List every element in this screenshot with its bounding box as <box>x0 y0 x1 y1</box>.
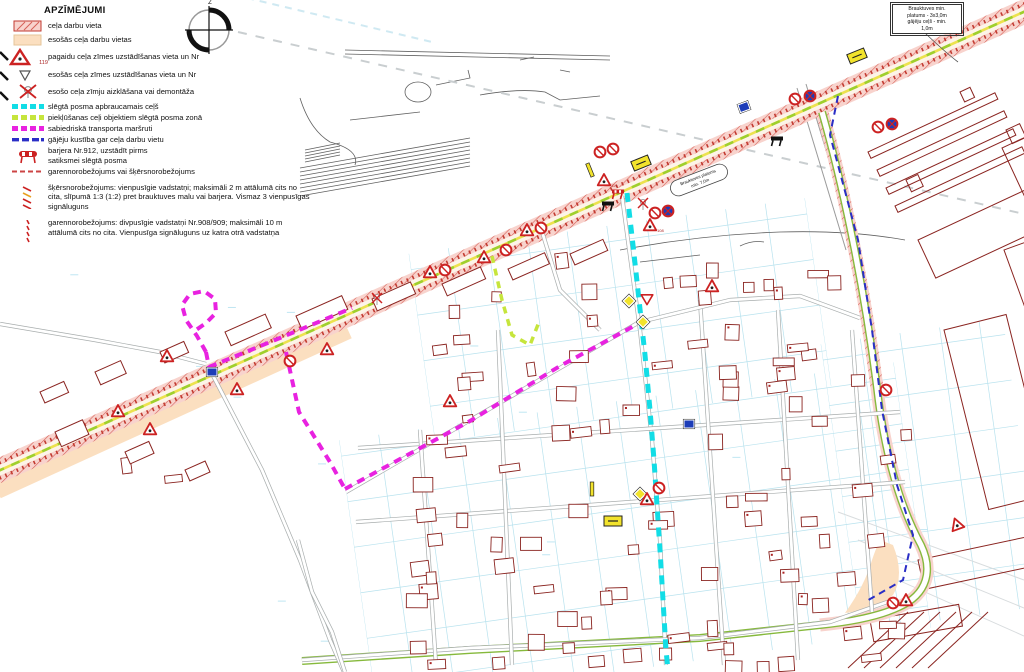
delimiter-dash-icon <box>8 169 48 174</box>
legend-item: esošās ceļa zīmes uzstādīšanas vieta un … <box>8 68 326 82</box>
access-dash-icon <box>8 114 48 121</box>
sign-circ <box>440 265 451 276</box>
sign-circ <box>654 483 665 494</box>
sign-barrierB <box>771 137 783 147</box>
residential-buildings <box>40 239 912 672</box>
sign-circ <box>790 94 801 105</box>
sign-circ <box>650 208 661 219</box>
svg-text:108: 108 <box>657 228 664 233</box>
sign-noStop <box>663 206 674 217</box>
sign-blueRect <box>206 367 218 377</box>
sign-circ <box>888 598 899 609</box>
pedestrian-dash-icon <box>8 137 48 143</box>
legend-note: šķērsnorobežojums: vienpusīgie vadstatņi… <box>8 183 326 211</box>
legend-item: barjera Nr.912, uzstādīt pirms satiksmei… <box>8 146 326 164</box>
sign-noStop <box>805 91 816 102</box>
sign-circ <box>595 147 606 158</box>
sign-tri: 119 <box>598 174 618 188</box>
legend-item: sabiedriskā transporta maršruti <box>8 124 326 133</box>
legend-item: esošās ceļa darbu vietas <box>8 34 326 46</box>
single-posts-icon <box>8 183 48 211</box>
transport-dash-icon <box>8 125 48 132</box>
sign-bar <box>590 482 594 496</box>
existing-works-swatch-icon <box>8 34 48 46</box>
sign-tri <box>706 280 719 291</box>
detour-dash-icon <box>8 103 48 110</box>
sign-circ <box>285 356 296 367</box>
sign-yellowRect <box>604 516 622 526</box>
sign-crossSign <box>638 198 648 210</box>
legend-item: gājēju kustība gar ceļa darbu vietu <box>8 135 326 144</box>
existing-sign-icon <box>8 68 48 82</box>
legend-item: ceļa darbu vieta <box>8 20 326 32</box>
sign-circ <box>881 385 892 396</box>
legend: APZĪMĒJUMI ceļa darbu vieta esošās ceļa … <box>8 3 326 244</box>
legend-note: garennorobežojums: divpusīgie vadstatņi … <box>8 218 326 244</box>
sign-circ <box>873 122 884 133</box>
roadway-width-note: Brauktuves min. platums - 3x3,0m gājēju … <box>892 4 962 34</box>
legend-item: garennorobežojums vai šķērsnorobežojums <box>8 167 326 176</box>
temporary-sign-icon: 119 <box>8 48 48 66</box>
sign-circ <box>501 245 512 256</box>
sign-tri <box>444 395 457 406</box>
sign-noStop <box>887 119 898 130</box>
legend-item: piekļūšanas ceļi objektiem slēgtā posma … <box>8 113 326 122</box>
legend-item: slēgtā posma apbraucamais ceļš <box>8 102 326 111</box>
sign-giveWay <box>641 295 653 305</box>
legend-item: esošo ceļa zīmju aizklāšana vai demontāž… <box>8 84 326 100</box>
legend-item: 119 pagaidu ceļa zīmes uzstādīšanas viet… <box>8 48 326 66</box>
sign-blueRect <box>737 101 751 114</box>
sign-yellowRect <box>847 48 867 64</box>
sign-tri <box>949 516 965 531</box>
sign-blueRect <box>683 419 695 429</box>
sign-circ <box>608 144 619 155</box>
svg-text:119: 119 <box>611 183 618 188</box>
sign-removal-icon <box>8 84 48 100</box>
works-area-swatch-icon <box>8 20 48 32</box>
sign-circ <box>536 223 547 234</box>
double-posts-icon <box>8 218 48 244</box>
barrier-icon <box>8 148 48 164</box>
sign-bar <box>586 163 595 177</box>
legend-title: APZĪMĒJUMI <box>44 5 326 16</box>
